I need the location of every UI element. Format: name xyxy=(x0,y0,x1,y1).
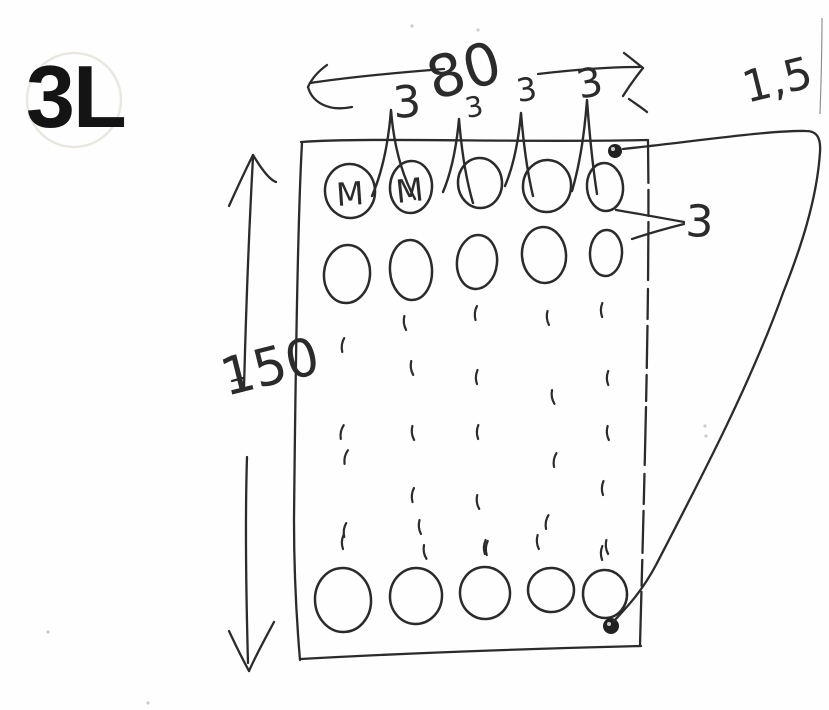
tick-mark xyxy=(601,481,604,495)
thickness-leader-line xyxy=(614,131,820,621)
peak-mark xyxy=(572,100,597,194)
scan-speck xyxy=(476,28,479,31)
scan-speck xyxy=(703,424,706,427)
hole-circle xyxy=(585,162,625,213)
hole-circles xyxy=(313,157,628,634)
scan-specks xyxy=(46,24,707,704)
tick-mark xyxy=(551,390,555,404)
hole-mark-2: M xyxy=(394,170,425,211)
tick-mark xyxy=(474,306,478,320)
tick-mark xyxy=(343,450,348,464)
tick-mark xyxy=(536,535,538,549)
thickness-callout: 1,5 xyxy=(614,47,820,621)
tick-mark xyxy=(476,495,479,509)
hole-circle xyxy=(457,565,512,622)
corner-dot-bottom xyxy=(603,618,619,634)
tick-mark xyxy=(403,316,406,330)
tick-mark xyxy=(546,311,549,325)
row-spacing-leader-lower xyxy=(632,224,684,239)
tick-mark xyxy=(341,338,345,352)
scan-speck xyxy=(146,701,149,704)
row-spacing-label: 3 xyxy=(685,196,715,248)
tick-mark xyxy=(600,303,602,317)
corner-dots xyxy=(603,144,622,634)
tick-mark xyxy=(339,425,344,439)
scan-speck xyxy=(704,434,707,437)
hole-circle xyxy=(313,566,373,634)
tick-mark xyxy=(606,426,608,440)
scan-speck xyxy=(46,630,49,633)
drawing-number-label: 3L xyxy=(26,47,125,146)
scan-speck xyxy=(410,24,413,27)
tick-mark xyxy=(418,520,421,534)
tick-mark xyxy=(475,370,478,384)
tick-mark xyxy=(544,515,549,529)
height-dimension: 150 xyxy=(215,155,326,671)
corner-dot-top xyxy=(608,144,622,158)
tick-mark xyxy=(476,425,478,439)
corner-dot-highlight xyxy=(611,147,615,151)
pitch-label-3: 3 xyxy=(514,69,539,109)
pitch-label-1: 3 xyxy=(391,76,422,129)
tick-marks xyxy=(339,303,609,560)
hole-mark-1: M xyxy=(335,174,365,214)
height-dim-label: 150 xyxy=(215,326,326,408)
hole-circle xyxy=(454,233,499,291)
tick-mark xyxy=(605,540,608,554)
plate-left-edge xyxy=(294,143,302,660)
tick-mark xyxy=(600,546,602,560)
plate-right-edge xyxy=(640,141,648,645)
page-edge-line xyxy=(820,18,822,114)
hole-circle xyxy=(589,229,623,277)
row-spacing-leader-upper xyxy=(616,210,684,222)
tick-mark xyxy=(552,453,557,467)
row-spacing-callout: 3 xyxy=(616,196,714,248)
plate-top-edge xyxy=(301,140,648,142)
sketch-canvas: 3L 80 xyxy=(0,0,829,710)
tick-mark xyxy=(411,488,415,502)
tick-mark xyxy=(411,426,414,440)
hole-circle xyxy=(520,225,569,285)
corner-dot-highlight xyxy=(607,622,611,626)
thickness-label: 1,5 xyxy=(737,47,817,113)
hole-circle xyxy=(388,566,445,626)
tick-mark xyxy=(341,535,344,549)
hole-circle xyxy=(388,239,434,302)
width-arrow-left xyxy=(308,65,444,108)
peak-mark xyxy=(505,113,533,196)
hole-circle xyxy=(322,243,373,305)
hole-circle xyxy=(527,566,576,613)
tick-mark xyxy=(607,371,609,385)
pitch-label-4: 3 xyxy=(573,58,607,108)
tick-mark xyxy=(423,545,427,559)
height-arrow-down xyxy=(229,457,274,671)
plate-bottom-edge xyxy=(301,646,641,659)
scanned-sketch-page: 3L 80 xyxy=(0,0,829,710)
hole-circle xyxy=(521,158,573,214)
hole-circle xyxy=(457,157,504,209)
tick-mark xyxy=(410,361,413,375)
